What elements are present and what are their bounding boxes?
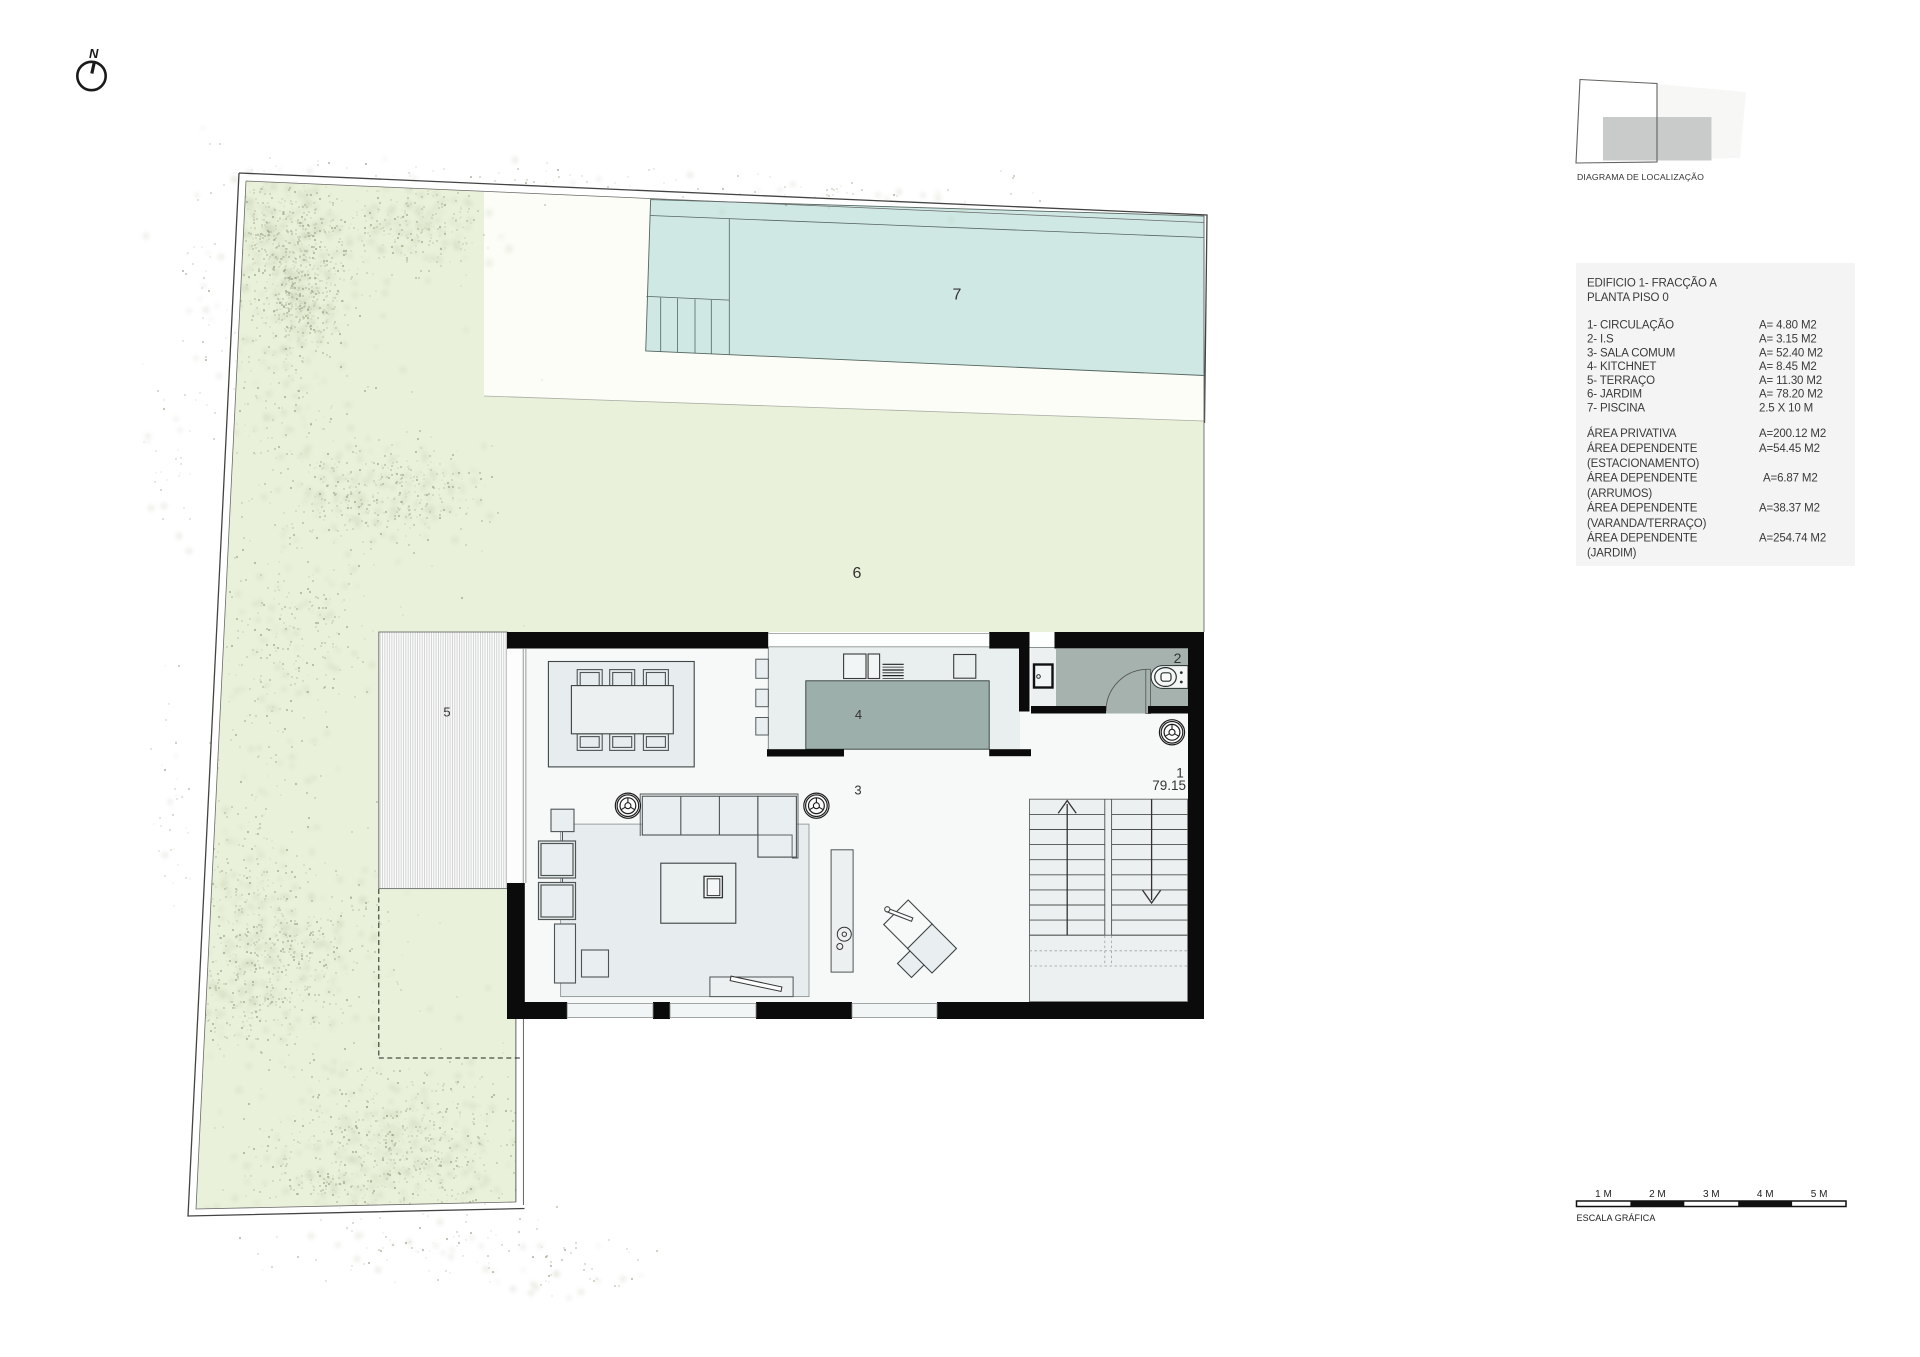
svg-text:7: 7 <box>953 287 962 304</box>
svg-text:A=54.45 M2: A=54.45 M2 <box>1759 443 1820 455</box>
svg-text:3: 3 <box>854 783 861 798</box>
svg-text:(JARDIM): (JARDIM) <box>1587 548 1637 560</box>
svg-text:79.15: 79.15 <box>1152 778 1186 793</box>
svg-text:ÁREA DEPENDENTE: ÁREA DEPENDENTE <box>1587 472 1698 485</box>
svg-text:A=254.74 M2: A=254.74 M2 <box>1759 533 1826 545</box>
svg-text:DIAGRAMA DE LOCALIZAÇÃO: DIAGRAMA DE LOCALIZAÇÃO <box>1577 172 1704 182</box>
svg-text:2 M: 2 M <box>1649 1189 1666 1200</box>
svg-text:A= 4.80 M2: A= 4.80 M2 <box>1759 320 1817 332</box>
svg-text:(VARANDA/TERRAÇO): (VARANDA/TERRAÇO) <box>1587 518 1707 530</box>
svg-text:ÁREA DEPENDENTE: ÁREA DEPENDENTE <box>1587 502 1698 515</box>
svg-text:2: 2 <box>1174 650 1182 666</box>
svg-text:1 M: 1 M <box>1595 1189 1612 1200</box>
svg-text:A=6.87 M2: A=6.87 M2 <box>1763 473 1818 485</box>
svg-text:EDIFICIO 1- FRACÇÃO A: EDIFICIO 1- FRACÇÃO A <box>1587 277 1717 290</box>
svg-text:3 M: 3 M <box>1703 1189 1720 1200</box>
svg-text:(ESTACIONAMENTO): (ESTACIONAMENTO) <box>1587 458 1699 470</box>
svg-text:6- JARDIM: 6- JARDIM <box>1587 389 1642 401</box>
svg-text:4- KITCHNET: 4- KITCHNET <box>1587 361 1656 373</box>
svg-text:3- SALA COMUM: 3- SALA COMUM <box>1587 347 1675 359</box>
svg-text:(ARRUMOS): (ARRUMOS) <box>1587 488 1652 500</box>
svg-text:ÁREA DEPENDENTE: ÁREA DEPENDENTE <box>1587 442 1698 455</box>
svg-text:A= 11.30 M2: A= 11.30 M2 <box>1759 375 1822 387</box>
svg-text:A=200.12 M2: A=200.12 M2 <box>1759 428 1826 440</box>
svg-text:4 M: 4 M <box>1757 1189 1774 1200</box>
svg-text:4: 4 <box>855 707 862 722</box>
svg-text:A= 3.15 M2: A= 3.15 M2 <box>1759 334 1817 346</box>
svg-text:5- TERRAÇO: 5- TERRAÇO <box>1587 375 1655 387</box>
svg-text:5: 5 <box>443 705 450 720</box>
svg-text:2- I.S: 2- I.S <box>1587 334 1614 346</box>
svg-text:ESCALA GRÁFICA: ESCALA GRÁFICA <box>1577 1213 1656 1223</box>
svg-text:2.5 X 10 M: 2.5 X 10 M <box>1759 403 1813 415</box>
svg-text:A=38.37 M2: A=38.37 M2 <box>1759 503 1820 515</box>
svg-text:6: 6 <box>853 565 862 582</box>
svg-text:ÁREA DEPENDENTE: ÁREA DEPENDENTE <box>1587 532 1698 545</box>
svg-text:A= 52.40 M2: A= 52.40 M2 <box>1759 347 1823 359</box>
svg-text:PLANTA PISO 0: PLANTA PISO 0 <box>1587 292 1669 304</box>
svg-text:5 M: 5 M <box>1811 1189 1828 1200</box>
svg-text:N: N <box>89 46 99 61</box>
svg-text:1- CIRCULAÇÃO: 1- CIRCULAÇÃO <box>1587 319 1674 332</box>
svg-text:A= 8.45 M2: A= 8.45 M2 <box>1759 361 1817 373</box>
svg-text:A= 78.20 M2: A= 78.20 M2 <box>1759 389 1823 401</box>
svg-text:ÁREA PRIVATIVA: ÁREA PRIVATIVA <box>1587 427 1677 440</box>
svg-text:7- PISCINA: 7- PISCINA <box>1587 403 1645 415</box>
